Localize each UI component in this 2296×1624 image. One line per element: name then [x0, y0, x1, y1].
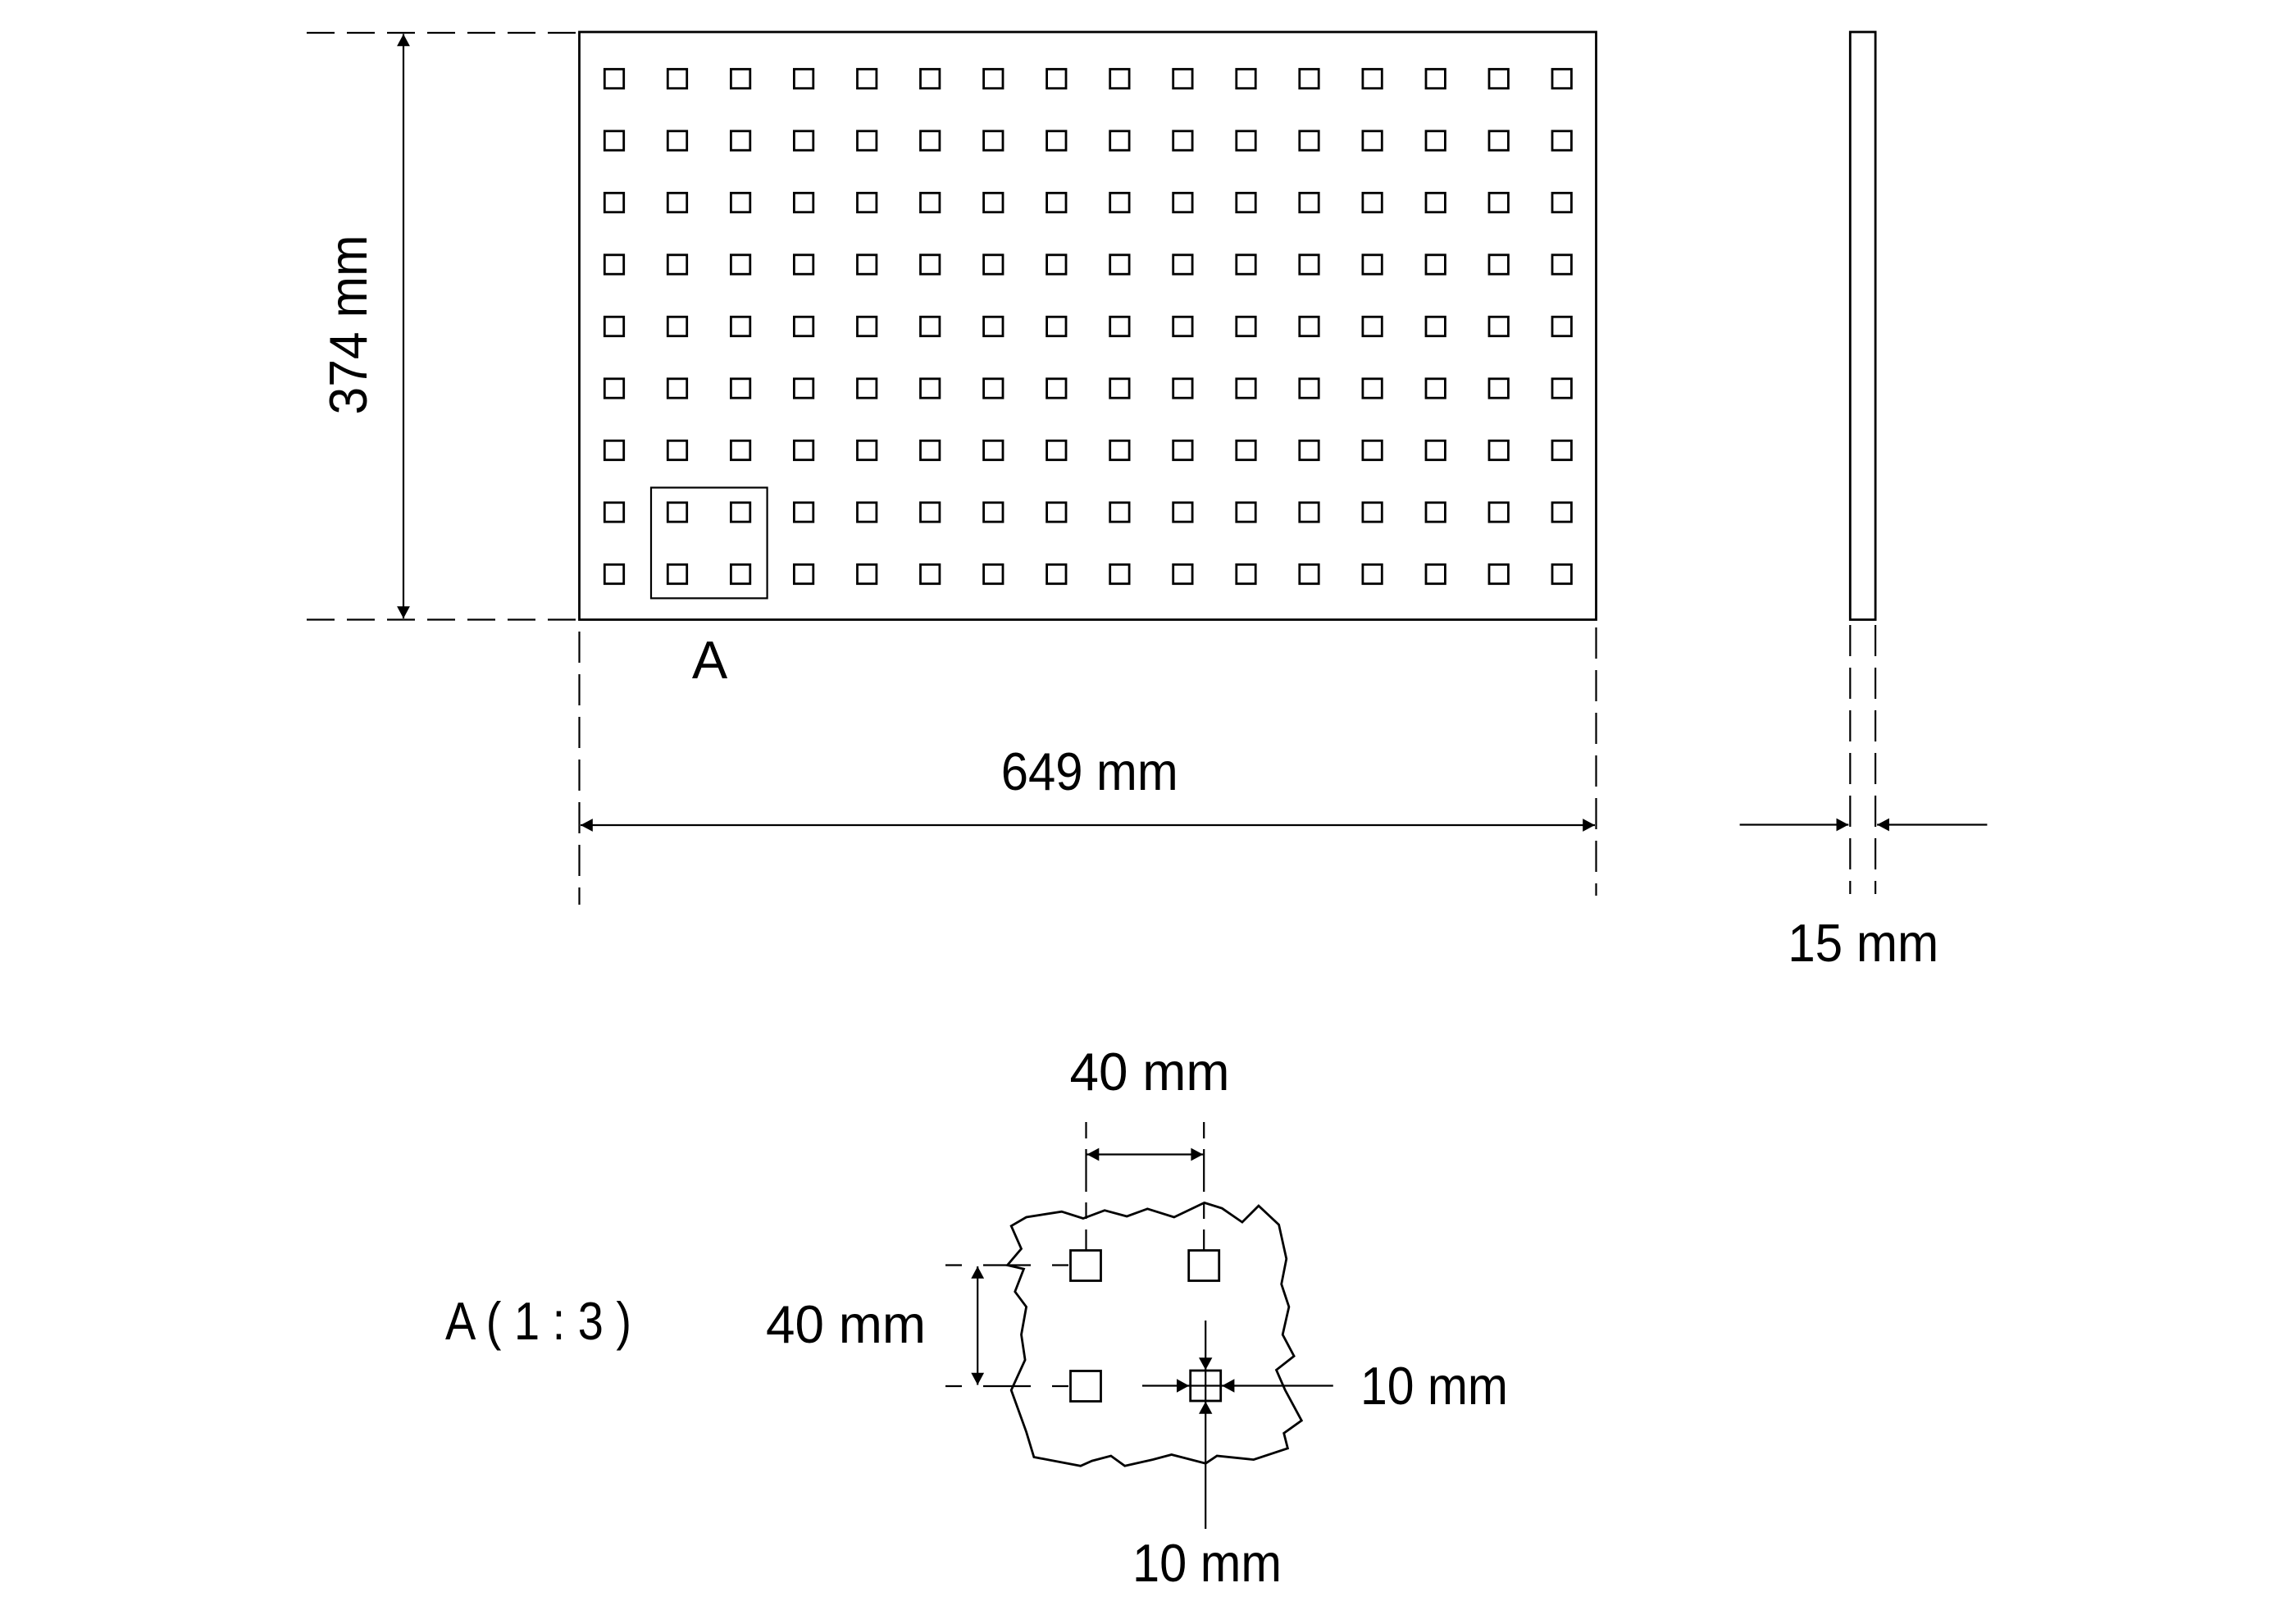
- svg-text:374 mm: 374 mm: [318, 235, 378, 415]
- svg-text:649 mm: 649 mm: [1001, 741, 1178, 801]
- svg-text:10 mm: 10 mm: [1360, 1356, 1508, 1416]
- svg-text:10 mm: 10 mm: [1132, 1533, 1282, 1593]
- svg-text:A ( 1 : 3 ): A ( 1 : 3 ): [445, 1291, 631, 1351]
- svg-text:15 mm: 15 mm: [1788, 913, 1938, 973]
- svg-text:40 mm: 40 mm: [766, 1294, 926, 1354]
- svg-text:A: A: [692, 630, 728, 690]
- svg-text:40 mm: 40 mm: [1070, 1042, 1230, 1102]
